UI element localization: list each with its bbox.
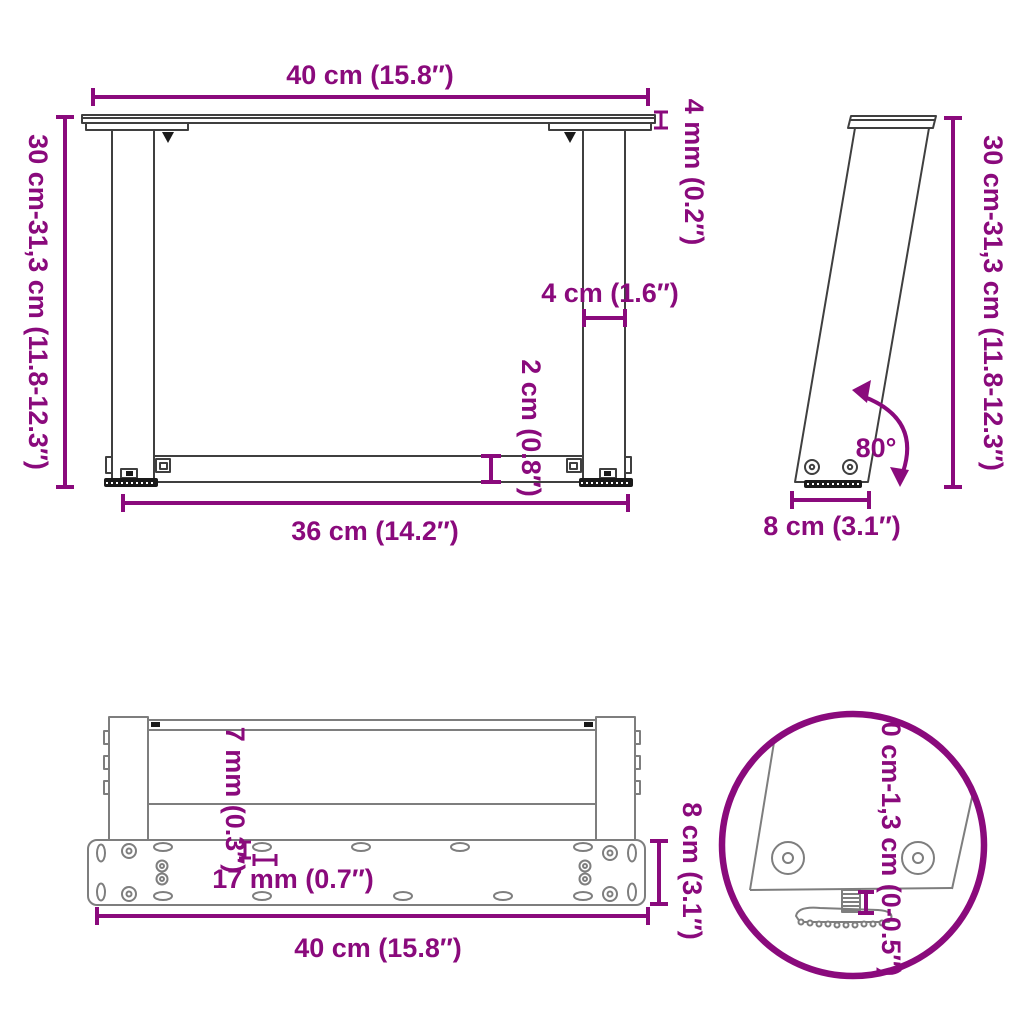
right-screw-icon bbox=[564, 132, 576, 143]
dim-front-crossbar-height: 2 cm (0.8″) bbox=[481, 359, 546, 497]
side-leg bbox=[795, 128, 929, 482]
dimension-diagram: 40 cm (15.8″) 4 mm (0.2″) 30 cm-31,3 cm … bbox=[0, 0, 1024, 1024]
detail-view: 0 cm-1,3 cm (0-0.5″) bbox=[722, 714, 984, 976]
front-plate-thickness-label: 4 mm (0.2″) bbox=[679, 99, 709, 245]
front-leg-width-label: 4 cm (1.6″) bbox=[541, 278, 679, 308]
dim-plan-plate-depth: 8 cm (3.1″) bbox=[650, 802, 707, 940]
diagram-canvas: 40 cm (15.8″) 4 mm (0.2″) 30 cm-31,3 cm … bbox=[0, 0, 1024, 1024]
side-view: 80° 8 cm (3.1″) 30 cm-31,3 cm (11.8-12.3… bbox=[763, 116, 1008, 541]
front-bottom-width-label: 36 cm (14.2″) bbox=[291, 516, 459, 546]
plan-slot-width-label: 7 mm (0.3″) bbox=[220, 727, 250, 873]
dim-detail-foot-adjustment: 0 cm-1,3 cm (0-0.5″) bbox=[858, 722, 906, 977]
plan-right-leg bbox=[596, 717, 635, 840]
dim-side-foot-depth: 8 cm (3.1″) bbox=[763, 491, 901, 541]
left-mount-plate bbox=[86, 123, 188, 130]
detail-circle bbox=[722, 714, 984, 976]
dim-side-angle: 80° bbox=[852, 380, 909, 487]
front-top-width-label: 40 cm (15.8″) bbox=[286, 60, 454, 90]
dim-plan-plate-width: 40 cm (15.8″) bbox=[97, 907, 648, 963]
left-screw-icon bbox=[162, 132, 174, 143]
dim-front-plate-thickness: 4 mm (0.2″) bbox=[654, 99, 709, 245]
front-view: 40 cm (15.8″) 4 mm (0.2″) 30 cm-31,3 cm … bbox=[23, 60, 709, 546]
detail-foot-adjustment-label: 0 cm-1,3 cm (0-0.5″) bbox=[876, 722, 906, 977]
dim-side-height: 30 cm-31,3 cm (11.8-12.3″) bbox=[944, 118, 1008, 487]
front-crossbar-height-label: 2 cm (0.8″) bbox=[516, 359, 546, 497]
plan-slot-length-label: 17 mm (0.7″) bbox=[212, 864, 374, 894]
dim-front-height: 30 cm-31,3 cm (11.8-12.3″) bbox=[23, 117, 74, 487]
plan-left-leg bbox=[109, 717, 148, 840]
plan-plate-depth-label: 8 cm (3.1″) bbox=[677, 802, 707, 940]
front-height-label: 30 cm-31,3 cm (11.8-12.3″) bbox=[23, 134, 53, 470]
plan-view: 7 mm (0.3″) 17 mm (0.7″) 8 cm (3.1″) 40 … bbox=[88, 717, 707, 963]
plan-plate-width-label: 40 cm (15.8″) bbox=[294, 933, 462, 963]
side-angle-label: 80° bbox=[856, 433, 897, 463]
side-height-label: 30 cm-31,3 cm (11.8-12.3″) bbox=[978, 135, 1008, 471]
right-mount-plate bbox=[549, 123, 651, 130]
dim-front-leg-width: 4 cm (1.6″) bbox=[541, 278, 679, 327]
side-top-plate bbox=[848, 116, 936, 128]
dim-front-bottom-width: 36 cm (14.2″) bbox=[123, 494, 628, 546]
dim-plan-slot-width: 7 mm (0.3″) bbox=[220, 727, 251, 873]
left-leg bbox=[112, 130, 154, 480]
dim-front-top-width: 40 cm (15.8″) bbox=[93, 60, 648, 106]
side-foot-depth-label: 8 cm (3.1″) bbox=[763, 511, 901, 541]
